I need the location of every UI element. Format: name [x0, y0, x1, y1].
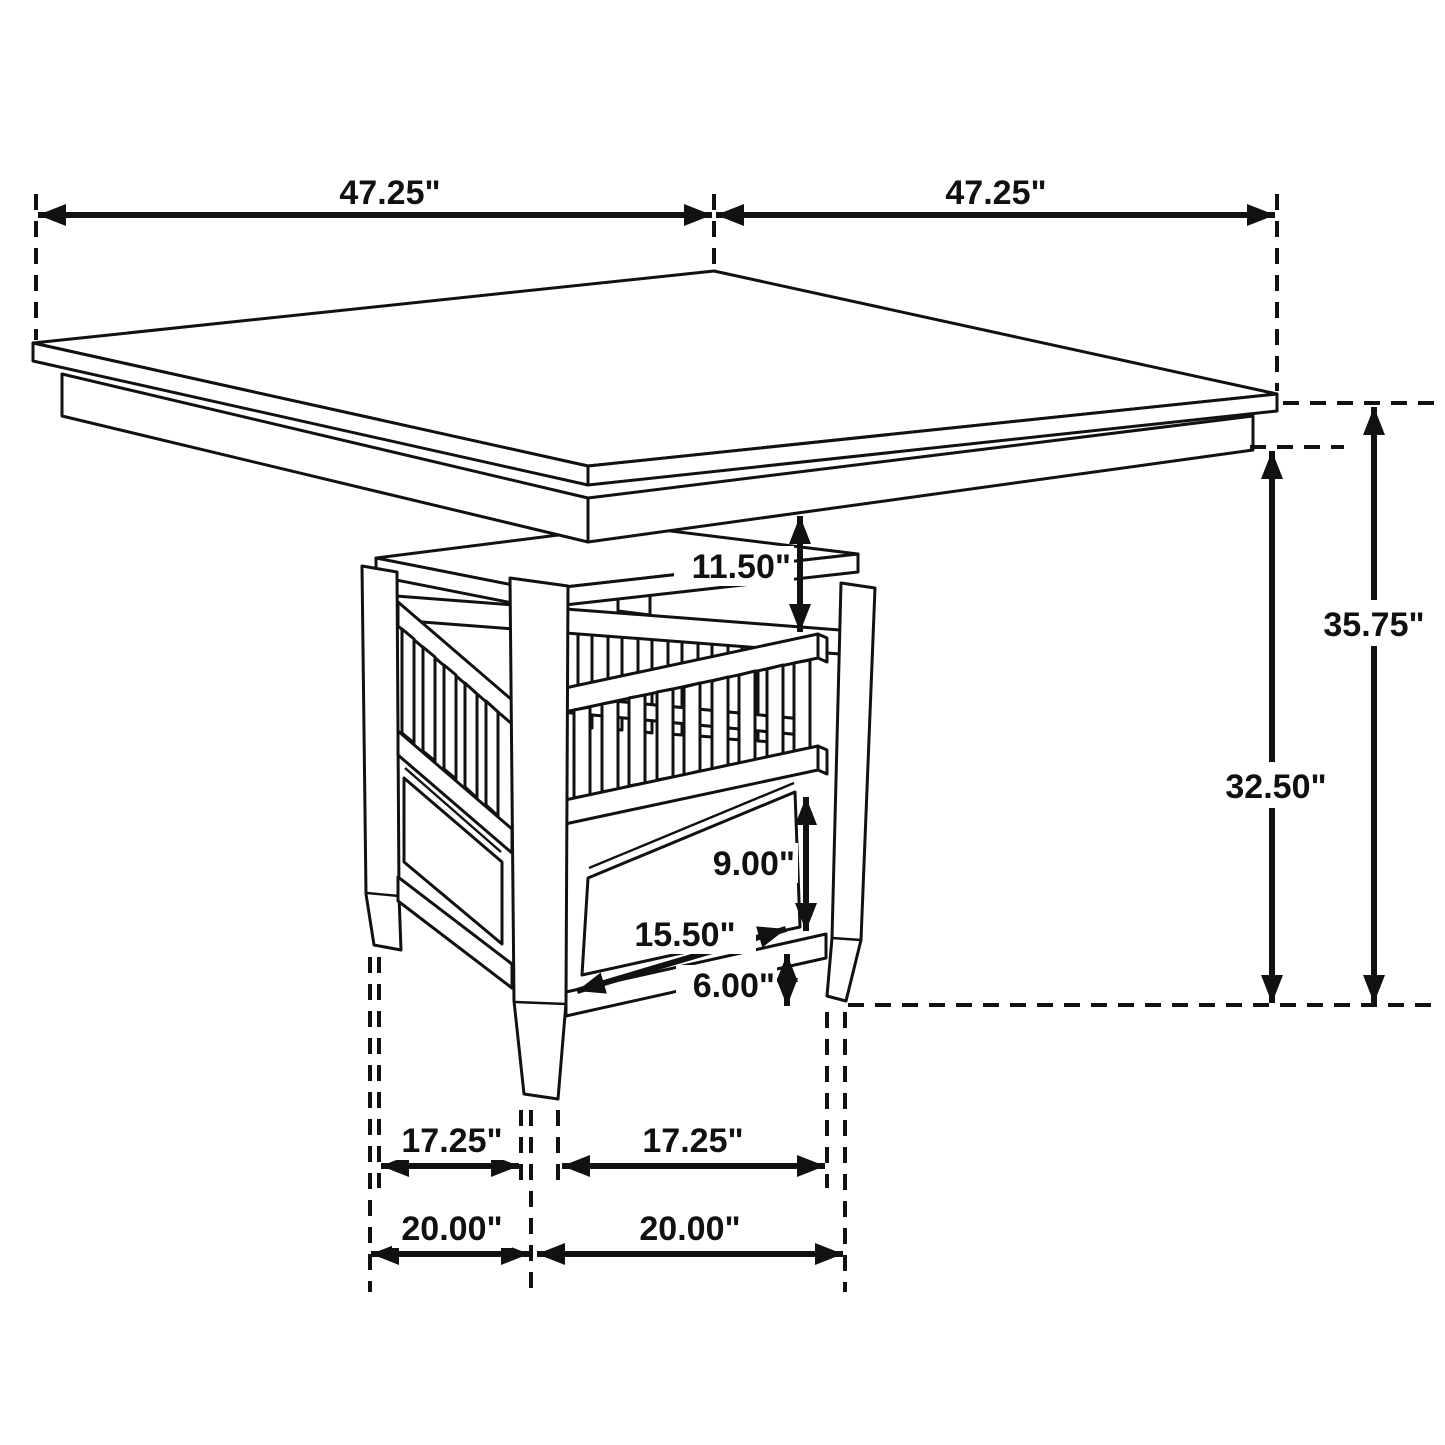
dim-label-width-right: 47.25"	[945, 174, 1046, 212]
dim-label-inner-right: 17.25"	[642, 1122, 743, 1160]
dim-label-base-height: 32.50"	[1225, 768, 1326, 806]
dim-label-outer-left: 20.00"	[401, 1210, 502, 1248]
left-leg	[362, 566, 401, 950]
dim-label-shelf-clearance: 11.50"	[692, 548, 791, 586]
pedestal-left-face	[398, 602, 512, 988]
diagram-canvas: 47.25" 47.25" 35.75" 32.50" 11.50" 9.00"…	[0, 0, 1445, 1445]
dim-label-floor-clearance: 6.00"	[693, 967, 775, 1005]
dim-label-table-height: 35.75"	[1323, 606, 1424, 644]
table-drawing	[33, 271, 1277, 1099]
dim-label-outer-right: 20.00"	[639, 1210, 740, 1248]
dim-label-drawer-width: 15.50"	[634, 916, 735, 954]
dim-label-drawer-height: 9.00"	[713, 845, 795, 883]
dim-label-width-left: 47.25"	[339, 174, 440, 212]
dim-label-inner-left: 17.25"	[401, 1122, 502, 1160]
tabletop	[33, 271, 1277, 542]
front-leg	[510, 578, 568, 1099]
furniture-dimension-diagram: 47.25" 47.25" 35.75" 32.50" 11.50" 9.00"…	[0, 0, 1445, 1445]
